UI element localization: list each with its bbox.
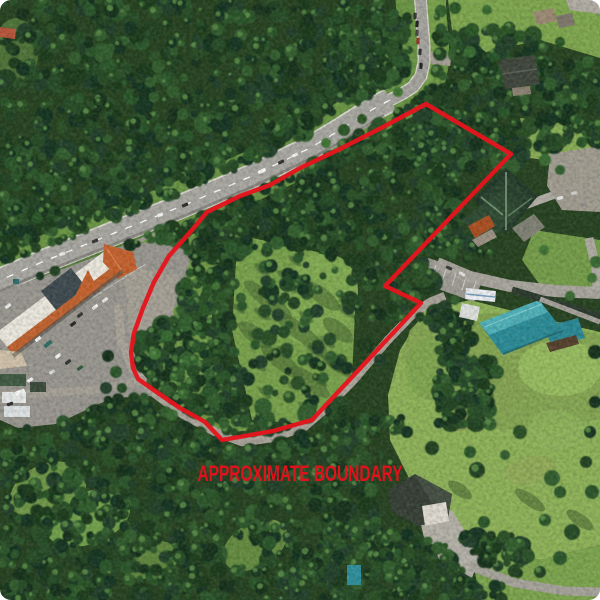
svg-text:APPROXIMATE BOUNDARY: APPROXIMATE BOUNDARY <box>198 461 403 486</box>
